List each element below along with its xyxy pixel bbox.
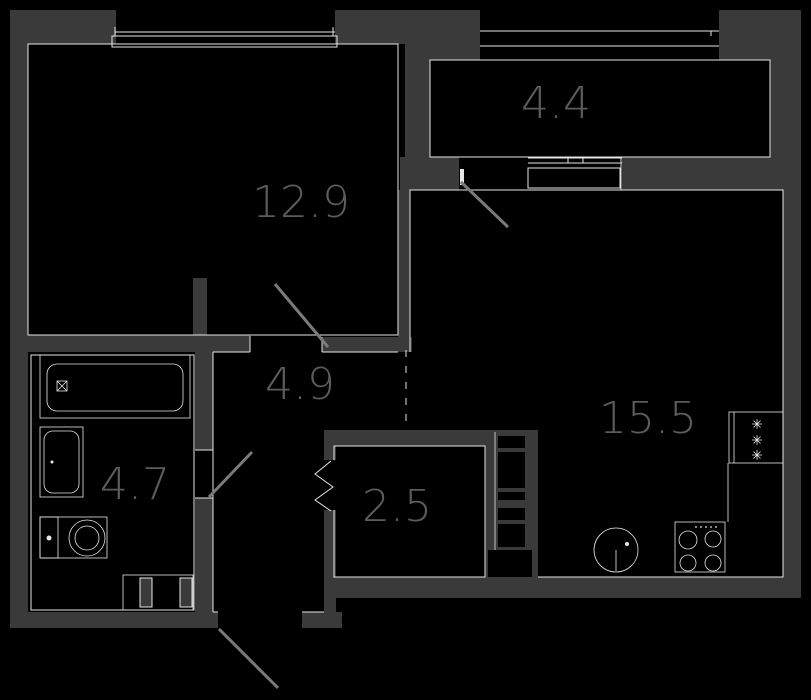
- balcony-glazing: [480, 31, 719, 46]
- living-room-door-swing: [275, 284, 328, 347]
- room-label-hallway: 4.9: [265, 359, 335, 410]
- closet-accordion-door: [315, 461, 333, 511]
- floor-plan: 12.9 4.4 4.9 4.7 2.5 15.5: [0, 0, 811, 700]
- snowflake-icon: [752, 419, 762, 460]
- room-label-kitchen: 15.5: [599, 393, 697, 444]
- bathroom-door-swing: [209, 452, 252, 497]
- refrigerator: [728, 412, 783, 522]
- washing-machine: [40, 517, 107, 558]
- wash-basin: [40, 427, 83, 497]
- balcony-door-swing: [461, 182, 508, 227]
- kitchen-sink: [594, 528, 638, 572]
- stove: [675, 522, 725, 572]
- walls: [10, 10, 801, 628]
- room-label-balcony: 4.4: [521, 78, 591, 129]
- room-label-living-room: 12.9: [252, 177, 350, 228]
- ventilation-duct: [123, 575, 193, 610]
- balcony-window: [460, 158, 622, 190]
- floor-plan-canvas: 12.9 4.4 4.9 4.7 2.5 15.5: [0, 0, 811, 700]
- balcony-outline: [430, 60, 770, 157]
- entrance-door-swing: [219, 629, 278, 688]
- room-label-bathroom: 4.7: [100, 459, 170, 510]
- room-label-closet: 2.5: [362, 481, 432, 532]
- bathtub: [40, 355, 190, 418]
- kitchen-outline: [410, 190, 783, 577]
